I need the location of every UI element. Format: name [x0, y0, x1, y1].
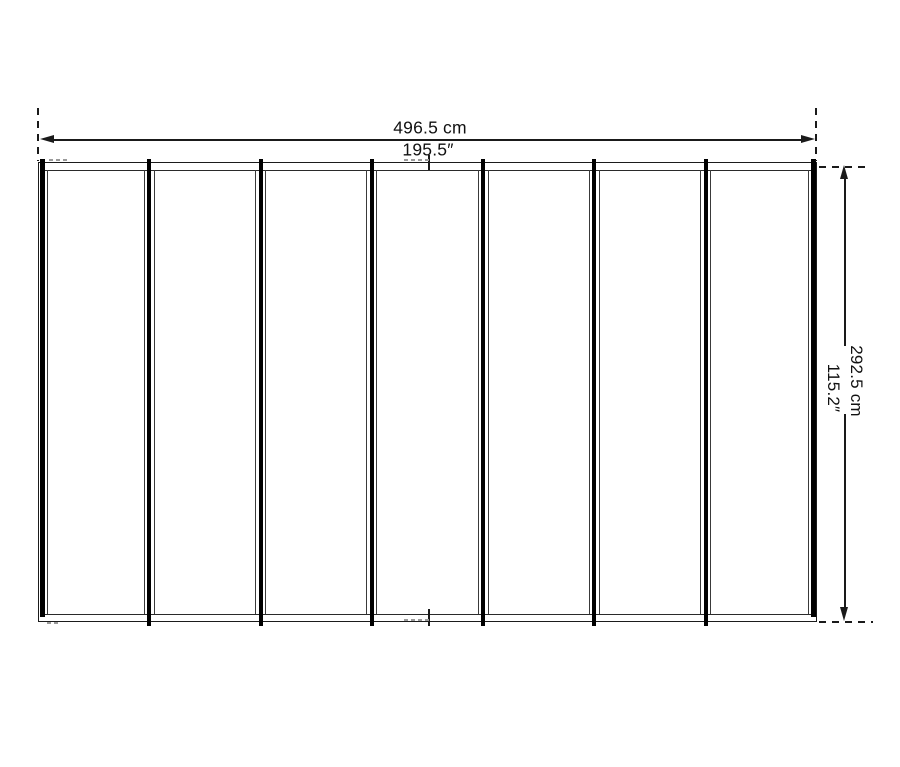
height-dimension-line-upper [844, 177, 846, 346]
width-extension-line-left [37, 108, 39, 161]
height-label-metric: 292.5 cm [846, 345, 866, 417]
dimension-drawing: 496.5 cm 195.5″ 292.5 cm 115.2″ [0, 0, 900, 767]
panel-left-edge-line [47, 170, 48, 614]
panel-rib [592, 159, 596, 626]
panel-rib [147, 159, 151, 626]
panel-left-edge-bar [40, 159, 45, 617]
width-arrow-right-icon [801, 135, 815, 143]
height-dimension-line-lower [844, 414, 846, 608]
fastener-dot [49, 159, 53, 161]
bottom-center-joint-tick [428, 609, 430, 626]
panel-rib [481, 159, 485, 626]
panel-rib [704, 159, 708, 626]
fastener-dot [47, 622, 51, 624]
panel-rib [366, 170, 367, 614]
panel-rib [144, 170, 145, 614]
panel-right-edge-line [808, 170, 809, 614]
panel-rib [700, 170, 701, 614]
panel-rib [265, 170, 266, 614]
panel-rib [589, 170, 590, 614]
panel-right-edge-bar [811, 159, 816, 617]
fastener-dot [56, 159, 60, 161]
fastener-dot [63, 159, 67, 161]
panel-rib [710, 170, 711, 614]
panel-rib [259, 159, 263, 626]
width-label-metric: 496.5 cm [393, 118, 467, 139]
panel-rib [370, 159, 374, 626]
width-label-imperial: 195.5″ [402, 139, 453, 160]
height-arrow-up-icon [840, 165, 848, 179]
panel-rib [488, 170, 489, 614]
panel-rib [255, 170, 256, 614]
height-label-imperial: 115.2″ [823, 364, 843, 413]
width-arrow-left-icon [40, 135, 54, 143]
fastener-dot [54, 622, 58, 624]
height-arrow-down-icon [840, 607, 848, 621]
fastener-dot [418, 619, 422, 621]
panel-rib [599, 170, 600, 614]
width-extension-line-right [815, 108, 817, 161]
fastener-dot [425, 619, 429, 621]
panel-rib [376, 170, 377, 614]
fastener-dot [404, 619, 408, 621]
panel-rib [154, 170, 155, 614]
panel-rib [478, 170, 479, 614]
fastener-dot [411, 619, 415, 621]
